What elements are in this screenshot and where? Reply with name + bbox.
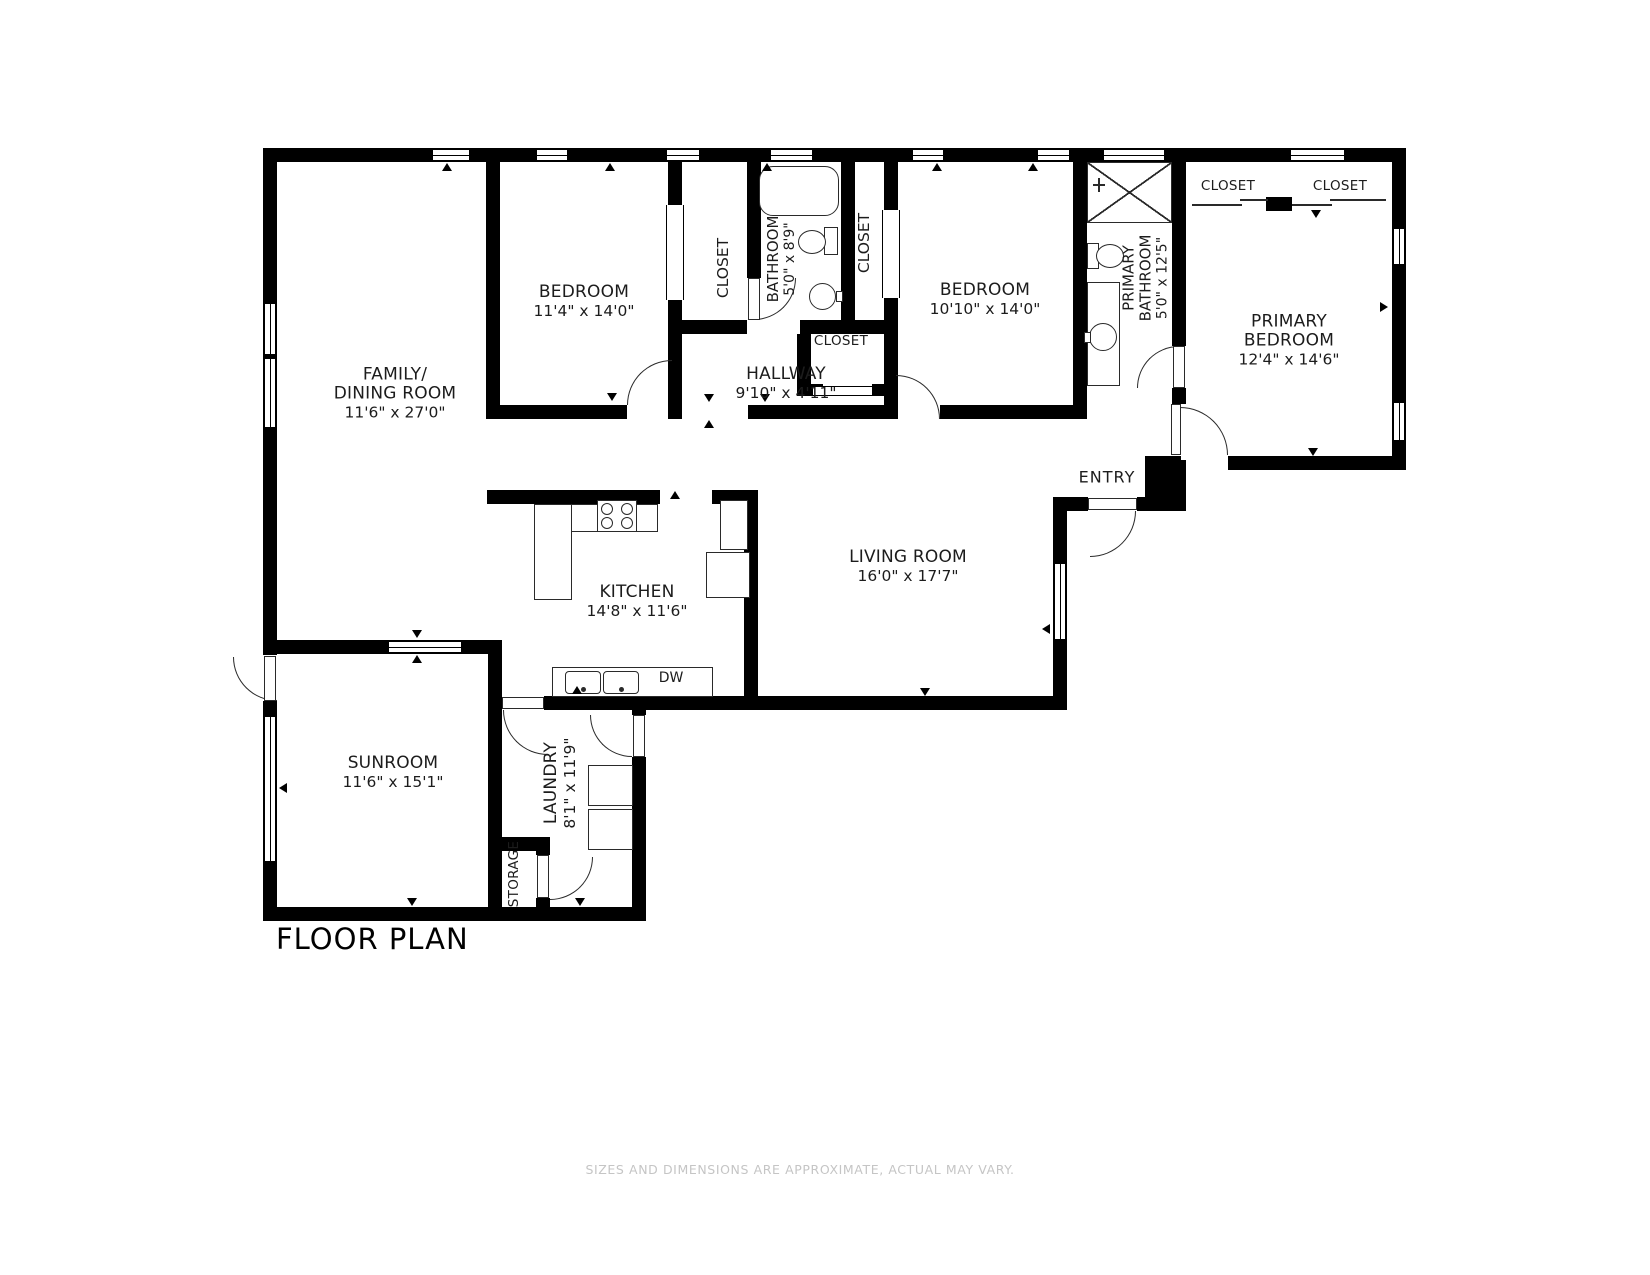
closet-label: CLOSET xyxy=(1313,178,1367,194)
door-leaf xyxy=(1171,404,1181,455)
room-label-bathroom: BATHROOM 5'0" x 8'9" xyxy=(765,216,799,303)
room-label-bedroom1: BEDROOM 11'4" x 14'0" xyxy=(534,283,635,321)
wall xyxy=(940,405,1087,419)
direction-marker xyxy=(932,163,942,171)
direction-marker xyxy=(1311,210,1321,218)
direction-marker xyxy=(1380,302,1388,312)
room-dims: 11'4" x 14'0" xyxy=(534,302,635,321)
room-label-storage: STORAGE xyxy=(506,841,522,907)
direction-marker xyxy=(442,163,452,171)
washer-icon xyxy=(588,765,633,806)
door-swing xyxy=(896,375,940,419)
door-swing xyxy=(1180,407,1228,455)
stove-burner-icon xyxy=(601,503,613,515)
drain-icon xyxy=(619,687,624,692)
door-swing xyxy=(627,360,672,405)
refrigerator xyxy=(706,552,750,598)
kitchen-counter xyxy=(534,504,572,600)
closet-label: CLOSET xyxy=(1201,178,1255,194)
wall xyxy=(486,405,627,419)
direction-marker xyxy=(670,491,680,499)
room-name: PRIMARY BATHROOM xyxy=(1121,235,1155,322)
window xyxy=(432,149,470,161)
direction-marker xyxy=(575,898,585,906)
closet-label: CLOSET xyxy=(814,333,868,349)
wall xyxy=(277,640,495,654)
closet-door-track xyxy=(1240,199,1268,201)
dishwasher-text: DW xyxy=(659,670,684,686)
stove-burner-icon xyxy=(621,503,633,515)
room-dims: 16'0" x 17'7" xyxy=(849,567,967,586)
window xyxy=(264,358,276,428)
door-leaf xyxy=(1088,498,1137,510)
direction-marker xyxy=(762,163,772,171)
wall xyxy=(1172,388,1186,404)
room-dims: 9'10" x 4'11" xyxy=(736,384,837,403)
bathtub xyxy=(759,166,839,216)
wall xyxy=(632,703,646,715)
room-name: BEDROOM xyxy=(930,281,1041,300)
room-dims: 14'8" x 11'6" xyxy=(587,602,688,621)
direction-marker xyxy=(407,898,417,906)
window xyxy=(770,149,813,161)
door-leaf xyxy=(1173,346,1185,388)
toilet-bowl-icon xyxy=(798,230,826,254)
closet-door-track xyxy=(1292,204,1332,206)
window xyxy=(1054,563,1066,640)
window xyxy=(1103,149,1165,161)
closet-text: CLOSET xyxy=(814,333,868,349)
wall xyxy=(1228,456,1406,470)
door-leaf xyxy=(748,278,760,320)
door-swing xyxy=(550,857,593,900)
window xyxy=(264,303,276,355)
room-name: STORAGE xyxy=(506,841,522,907)
wall xyxy=(1137,497,1151,511)
page-title: FLOOR PLAN xyxy=(276,922,469,956)
sliding-closet-door xyxy=(666,205,684,300)
toilet-tank-icon xyxy=(824,227,838,255)
room-label-living: LIVING ROOM 16'0" x 17'7" xyxy=(849,548,967,586)
door-leaf xyxy=(537,855,549,898)
room-dims: 8'1" x 11'9" xyxy=(561,737,580,828)
direction-marker xyxy=(605,163,615,171)
wall xyxy=(544,696,1067,710)
sliding-closet-door xyxy=(882,210,900,298)
window xyxy=(1037,149,1070,161)
room-label-laundry: LAUNDRY 8'1" x 11'9" xyxy=(542,737,580,828)
direction-marker xyxy=(572,686,582,694)
room-dims: 5'0" x 12'5" xyxy=(1155,235,1172,322)
room-name: BATHROOM xyxy=(765,216,782,303)
door-swing xyxy=(590,715,632,757)
room-label-primary-bathroom: PRIMARY BATHROOM 5'0" x 12'5" xyxy=(1121,235,1172,322)
room-name: BEDROOM xyxy=(534,283,635,302)
dryer-icon xyxy=(588,809,633,850)
room-dims: 12'4" x 14'6" xyxy=(1239,351,1340,370)
direction-marker xyxy=(920,688,930,696)
window xyxy=(1290,149,1345,161)
room-name: LIVING ROOM xyxy=(849,548,967,567)
shower-icon xyxy=(1087,162,1172,223)
door-swing xyxy=(1090,511,1136,557)
room-label-sunroom: SUNROOM 11'6" x 15'1" xyxy=(343,754,444,792)
faucet-icon xyxy=(836,291,843,302)
closet-text: CLOSET xyxy=(714,238,732,298)
room-dims: 10'10" x 14'0" xyxy=(930,300,1041,319)
closet-text: CLOSET xyxy=(855,213,873,273)
wall xyxy=(263,907,646,921)
wall xyxy=(536,837,550,855)
room-label-kitchen: KITCHEN 14'8" x 11'6" xyxy=(587,583,688,621)
direction-marker xyxy=(412,630,422,638)
wall xyxy=(748,405,898,419)
direction-marker xyxy=(1042,624,1050,634)
room-name: ENTRY xyxy=(1079,468,1136,487)
direction-marker xyxy=(279,783,287,793)
wall xyxy=(872,384,884,396)
door-leaf xyxy=(264,656,276,701)
disclaimer-text: SIZES AND DIMENSIONS ARE APPROXIMATE, AC… xyxy=(585,1162,1014,1177)
room-dims: 11'6" x 15'1" xyxy=(343,773,444,792)
direction-marker xyxy=(704,420,714,428)
wall xyxy=(841,162,855,320)
stove-burner-icon xyxy=(601,517,613,529)
direction-marker xyxy=(1028,163,1038,171)
faucet-icon xyxy=(1084,332,1091,343)
dishwasher-label: DW xyxy=(659,670,684,686)
room-label-primary-bedroom: PRIMARY BEDROOM 12'4" x 14'6" xyxy=(1239,313,1340,370)
room-dims: 5'0" x 8'9" xyxy=(782,216,799,303)
wall xyxy=(1172,162,1186,346)
window xyxy=(666,149,700,161)
wall xyxy=(488,640,502,921)
window xyxy=(912,149,944,161)
room-name: SUNROOM xyxy=(343,754,444,773)
closet-divider xyxy=(1266,197,1292,211)
room-name: FAMILY/ DINING ROOM xyxy=(334,366,457,404)
wall xyxy=(536,898,550,921)
room-dims: 11'6" x 27'0" xyxy=(334,404,457,423)
room-name: HALLWAY xyxy=(736,365,837,384)
room-name: PRIMARY BEDROOM xyxy=(1239,313,1340,351)
cabinet xyxy=(720,500,748,550)
window xyxy=(264,716,276,862)
sink-icon xyxy=(809,283,836,310)
room-label-hallway: HALLWAY 9'10" x 4'11" xyxy=(736,365,837,403)
closet-label: CLOSET xyxy=(855,213,873,273)
closet-text: CLOSET xyxy=(1201,178,1255,194)
room-label-family: FAMILY/ DINING ROOM 11'6" x 27'0" xyxy=(334,366,457,423)
room-label-entry: ENTRY xyxy=(1079,468,1136,487)
floor-plan: FAMILY/ DINING ROOM 11'6" x 27'0" BEDROO… xyxy=(0,0,1650,1275)
closet-door-track xyxy=(1192,204,1242,206)
window xyxy=(1393,228,1405,265)
wall xyxy=(486,162,500,419)
closet-text: CLOSET xyxy=(1313,178,1367,194)
direction-marker xyxy=(412,655,422,663)
closet-door-track xyxy=(1330,199,1386,201)
sink-icon xyxy=(1089,323,1117,351)
room-name: LAUNDRY xyxy=(542,737,561,828)
window xyxy=(388,641,462,653)
direction-marker xyxy=(607,393,617,401)
room-label-bedroom2: BEDROOM 10'10" x 14'0" xyxy=(930,281,1041,319)
door-leaf xyxy=(633,715,645,757)
entry-notch-wall xyxy=(1145,460,1186,511)
wall xyxy=(1053,497,1088,511)
direction-marker xyxy=(1308,448,1318,456)
stove-burner-icon xyxy=(621,517,633,529)
room-name: KITCHEN xyxy=(587,583,688,602)
door-leaf xyxy=(502,697,544,709)
wall xyxy=(632,757,646,921)
wall xyxy=(1073,162,1087,419)
window xyxy=(536,149,568,161)
direction-marker xyxy=(704,394,714,402)
closet-label: CLOSET xyxy=(714,238,732,298)
wall xyxy=(668,320,747,334)
window xyxy=(1393,402,1405,441)
